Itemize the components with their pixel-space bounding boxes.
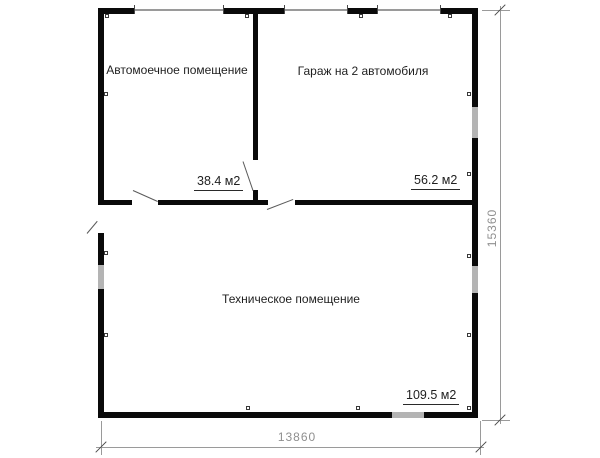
exterior-wall-right-segment — [472, 138, 478, 266]
dimension-line-right — [500, 6, 501, 424]
wall-tag — [467, 172, 471, 176]
window — [472, 107, 478, 138]
area-label-carwash: 38.4 м2 — [194, 175, 243, 191]
area-label-technical: 109.5 м2 — [403, 389, 459, 405]
garage-door-opening — [134, 9, 224, 11]
wall-tag — [467, 92, 471, 96]
opening-end-tick — [223, 5, 224, 14]
opening-end-tick — [377, 5, 378, 14]
wall-tag — [246, 406, 250, 410]
wall-tag — [467, 406, 471, 410]
wall-tag — [356, 406, 360, 410]
exterior-wall-left-segment — [98, 8, 104, 205]
exterior-wall-left-segment — [98, 233, 104, 265]
wall-tag — [104, 251, 108, 255]
exterior-wall-right-segment — [472, 293, 478, 418]
room-label-technical: Техническое помещение — [211, 292, 371, 306]
dimension-line-bottom — [96, 447, 484, 448]
door-leaf — [133, 190, 158, 202]
extension-line — [482, 10, 510, 11]
interior-wall-horizontal-segment — [104, 200, 132, 205]
wall-tag — [105, 14, 109, 18]
room-label-garage: Гараж на 2 автомобиля — [283, 64, 443, 78]
opening-end-tick — [284, 5, 285, 14]
floor-plan: 13860 15360 Автомоечное помещение Гараж … — [0, 0, 600, 458]
extension-line — [101, 421, 102, 455]
door-leaf — [87, 221, 98, 234]
wall-tag — [104, 92, 108, 96]
opening-end-tick — [134, 5, 135, 14]
window — [392, 412, 424, 418]
wall-tag — [448, 14, 452, 18]
interior-wall-horizontal-segment — [158, 200, 268, 205]
window — [472, 266, 478, 293]
exterior-wall-right-segment — [472, 8, 478, 107]
extension-line — [480, 421, 481, 455]
window — [98, 265, 104, 289]
wall-tag — [104, 333, 108, 337]
interior-wall-horizontal-segment — [295, 200, 472, 205]
exterior-wall-bottom-segment — [424, 412, 478, 418]
extension-line — [482, 420, 510, 421]
dimension-label-bottom: 13860 — [259, 430, 335, 444]
garage-door-opening — [284, 9, 348, 11]
opening-end-tick — [440, 5, 441, 14]
exterior-wall-bottom-segment — [98, 412, 392, 418]
dimension-label-right: 15360 — [485, 198, 499, 258]
wall-tag — [467, 254, 471, 258]
wall-tag — [467, 333, 471, 337]
door-leaf — [267, 199, 293, 210]
wall-tag — [359, 14, 363, 18]
exterior-wall-left-segment — [98, 289, 104, 418]
opening-end-tick — [347, 5, 348, 14]
room-label-carwash: Автомоечное помещение — [97, 63, 257, 77]
interior-wall-vertical — [253, 14, 258, 160]
door-leaf — [243, 161, 254, 191]
area-label-garage: 56.2 м2 — [411, 174, 460, 190]
wall-tag — [245, 14, 249, 18]
garage-door-opening — [377, 9, 441, 11]
